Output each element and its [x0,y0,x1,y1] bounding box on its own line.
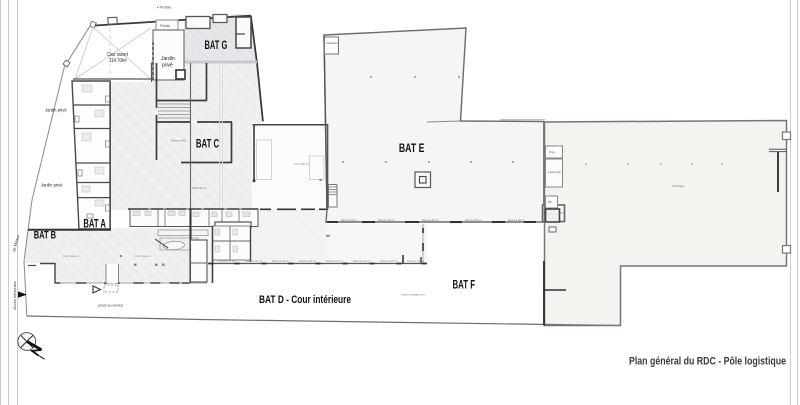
svg-text:Jardin: Jardin [161,56,175,62]
svg-text:BAT F: BAT F [453,278,476,292]
svg-text:BAT B: BAT B [34,230,56,242]
svg-text:Jardin privé: Jardin privé [41,183,63,188]
svg-text:WC: WC [548,200,552,204]
svg-text:Préau: Préau [160,24,170,28]
svg-text:Réserve 56 m²: Réserve 56 m² [341,219,358,222]
svg-text:Réserve 64 m²: Réserve 64 m² [353,259,370,263]
svg-text:Réserve 56 m²: Réserve 56 m² [465,219,482,222]
svg-text:Local poub.: Local poub. [548,170,562,174]
svg-text:vue du chargement: vue du chargement [402,293,425,297]
svg-text:privé: privé [162,63,173,69]
svg-text:Réserve 64 m²: Réserve 64 m² [326,259,343,263]
svg-text:BAT C: BAT C [196,139,219,151]
svg-text:Réserve 64 m²: Réserve 64 m² [380,259,397,263]
svg-text:Flux ligne H: Flux ligne H [135,254,151,258]
svg-text:Réserve 56 m²: Réserve 56 m² [422,219,439,222]
svg-text:Frigo: Frigo [549,150,555,154]
svg-text:Réserve RE: Réserve RE [171,139,186,143]
svg-text:Vestiaires: Vestiaires [326,41,339,45]
svg-text:Réserve 64 m²: Réserve 64 m² [299,259,316,263]
svg-text:accès au service: accès au service [98,304,123,308]
svg-text:Réserve 56 m²: Réserve 56 m² [378,219,395,222]
svg-text:Flux ligne H: Flux ligne H [63,254,79,258]
svg-text:BAT A: BAT A [83,216,106,230]
svg-text:Réserve 64 m²: Réserve 64 m² [272,259,289,263]
svg-text:Stockage: Stockage [672,184,685,188]
svg-text:Accès véhicules: Accès véhicules [12,281,17,310]
svg-text:BAT D - Cour intérieure: BAT D - Cour intérieure [259,294,351,306]
svg-text:BAT E: BAT E [399,141,425,155]
svg-text:114.70m²: 114.70m² [109,58,127,64]
svg-text:(CF Rdc 1): (CF Rdc 1) [294,162,309,166]
svg-text:Réserve 56 m²: Réserve 56 m² [508,219,525,222]
svg-text:Réserve 64 m²: Réserve 64 m² [245,259,262,263]
svg-text:Plan général du RDC - Pôle log: Plan général du RDC - Pôle logistique [629,355,786,367]
svg-text:Stock de liv.: Stock de liv. [192,186,207,190]
svg-text:BAT G: BAT G [205,38,228,52]
svg-text:▪ Prairie: ▪ Prairie [157,5,172,10]
svg-text:Jardin privé: Jardin privé [45,108,67,113]
svg-text:Réserve 64 m²: Réserve 64 m² [218,259,235,263]
